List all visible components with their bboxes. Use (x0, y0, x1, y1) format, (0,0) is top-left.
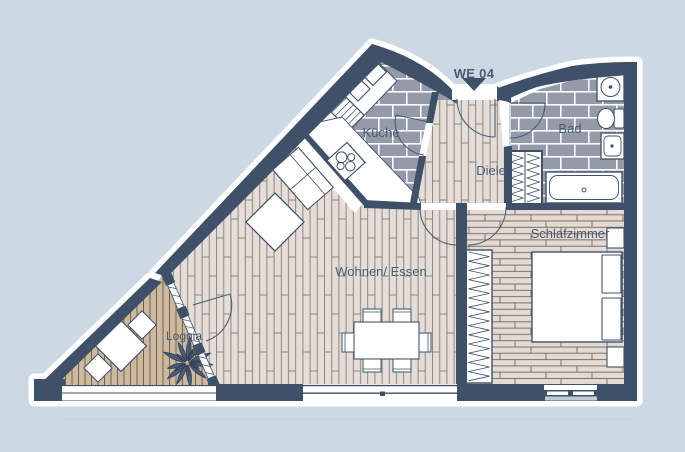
svg-text:Schlafzimmer: Schlafzimmer (531, 226, 610, 241)
svg-text:Küche: Küche (363, 125, 400, 140)
svg-text:Wohnen/ Essen: Wohnen/ Essen (335, 264, 427, 279)
svg-text:Loggia: Loggia (166, 329, 202, 343)
svg-text:Bad: Bad (558, 121, 581, 136)
svg-text:Diele: Diele (476, 163, 506, 178)
svg-text:WE 04: WE 04 (454, 66, 495, 81)
